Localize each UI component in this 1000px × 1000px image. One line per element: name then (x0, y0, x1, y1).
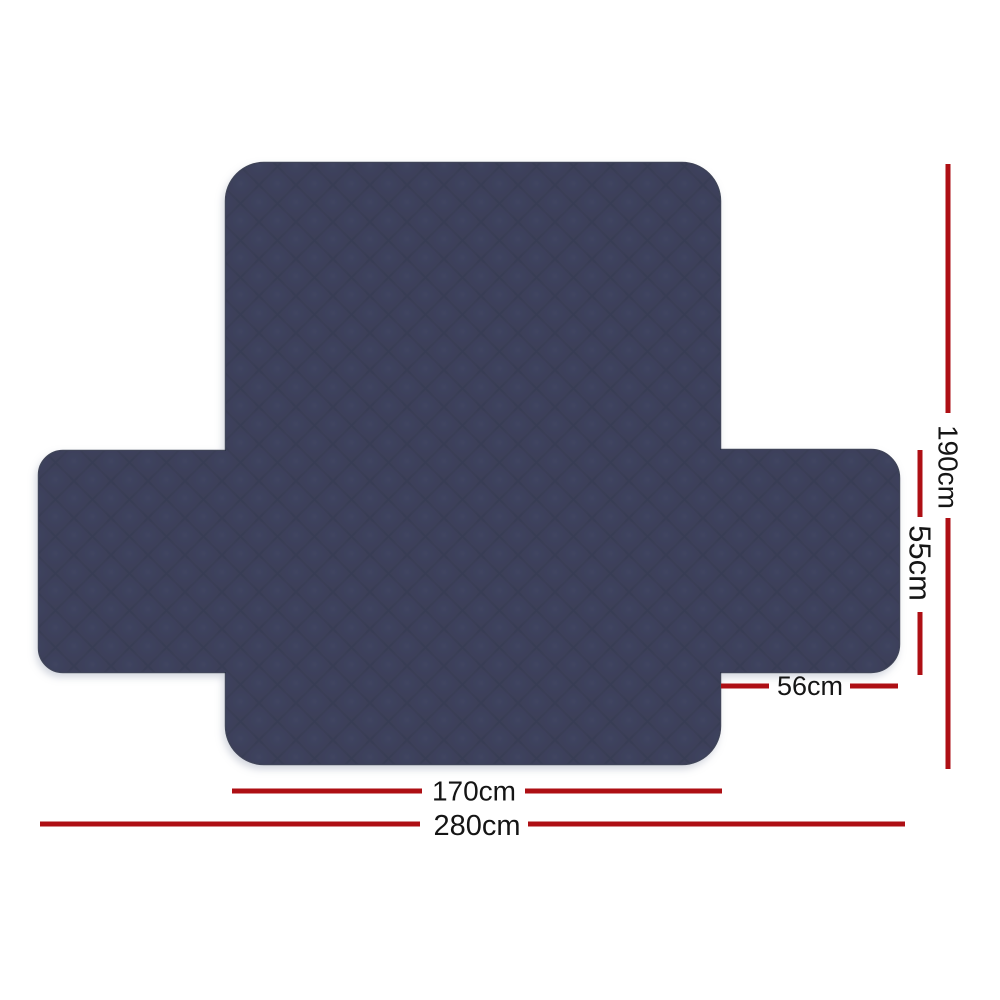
svg-text:190cm: 190cm (933, 425, 964, 509)
svg-text:280cm: 280cm (433, 810, 520, 842)
svg-text:55cm: 55cm (903, 525, 938, 601)
svg-text:170cm: 170cm (432, 776, 516, 807)
svg-text:56cm: 56cm (777, 671, 843, 701)
